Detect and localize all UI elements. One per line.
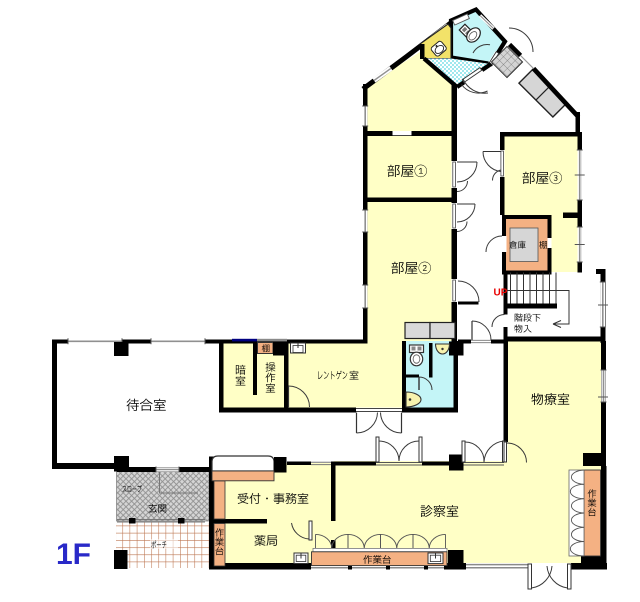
svg-text:UP: UP xyxy=(494,288,508,299)
svg-text:1F: 1F xyxy=(56,538,91,571)
